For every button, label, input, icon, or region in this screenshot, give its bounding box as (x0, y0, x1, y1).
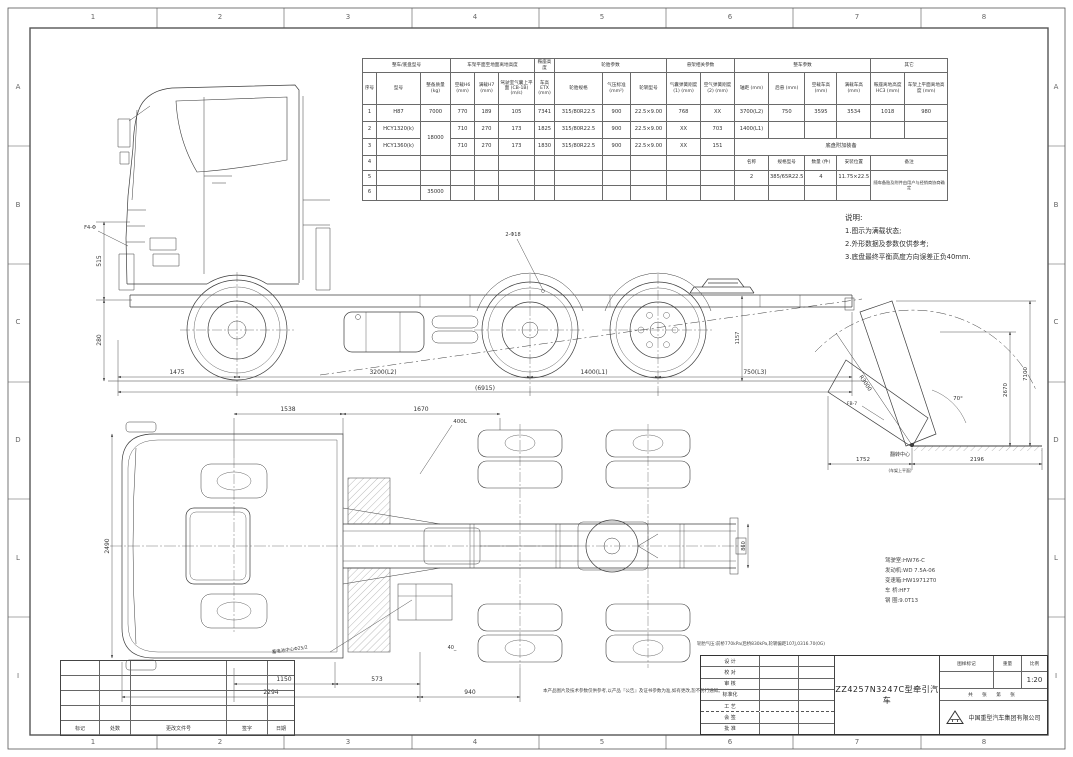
spec-cell (631, 156, 667, 171)
sign-label: 审 核 (701, 679, 760, 689)
scale-value: 1:20 (1022, 672, 1047, 688)
spec-cell (701, 186, 735, 201)
dim-overall-length: (6915) (475, 385, 495, 392)
config-line: 车 桥:HF7 (885, 586, 936, 596)
grid-row-label: C (16, 318, 21, 326)
spec-cell: 750 (769, 105, 805, 122)
spec-group: 车架平面至地面离地高度 (451, 59, 535, 73)
spec-cell: 22.5×9.00 (631, 139, 667, 156)
grid-col-label: 3 (346, 738, 350, 746)
spec-header: 序号 (363, 73, 377, 105)
company-name: 中国重型汽车集团有限公司 (968, 713, 1040, 722)
spec-header: 驾驶室气囊上平面 (CB-1B) (m/s) (499, 73, 535, 105)
label-2d18: 2-Φ18 (505, 232, 520, 238)
spec-cell: 189 (475, 105, 499, 122)
spec-cell (555, 171, 603, 186)
grid-col-label: 5 (600, 13, 604, 21)
spec-group: 整车/底盘型号 (363, 59, 451, 73)
spec-cell: 1830 (535, 139, 555, 156)
sign-label: 批 准 (701, 724, 760, 734)
spec-cell (421, 156, 451, 171)
spec-cell: 980 (905, 105, 948, 122)
spec-cell: 105 (499, 105, 535, 122)
spec-cell (701, 156, 735, 171)
spec-cell: 315/80R22.5 (555, 122, 603, 139)
grid-row-label: A (1054, 83, 1059, 91)
spec-cell (603, 186, 631, 201)
spec-cell (701, 171, 735, 186)
title-block-right: 图样标记 重量 比例 1:20 共 张 第 张 中国重型汽车集团有限公司 (940, 656, 1047, 734)
spec-header: 空气弹簧刚度(2) (mm) (701, 73, 735, 105)
config-line: 变速箱:HW19712T0 (885, 576, 936, 586)
spec-row: 2 HCY1320(k) 18000 710 270 173 1825 315/… (363, 122, 948, 139)
label-400l: 400L (453, 419, 467, 425)
spec-subheader: 名称 (735, 156, 769, 171)
grid-row-label: L (16, 554, 20, 562)
spec-cell: 1825 (535, 122, 555, 139)
dim-frame-width: 860 (741, 541, 747, 551)
spec-cell: 270 (475, 122, 499, 139)
spec-group: 其它 (871, 59, 948, 73)
config-line: 发动机:WD 7.5A-06 (885, 566, 936, 576)
spec-cell: 3700(L2) (735, 105, 769, 122)
label-tilt-center-sub: (车架上平面) (888, 467, 912, 473)
revision-row (61, 661, 294, 676)
spec-cell: 710 (451, 122, 475, 139)
label-battery-center: 蓄电池中心Φ25/2 (271, 644, 308, 656)
spec-cell: 1400(L1) (735, 122, 769, 139)
spec-subheader: 规格型号 (769, 156, 805, 171)
grid-col-label: 8 (982, 13, 986, 21)
spec-cell: 900 (603, 105, 631, 122)
grid-row-label: I (17, 672, 19, 680)
dim-front-overhang: 1475 (169, 369, 184, 376)
signature-table: 设 计 校 对 审 核 标准化 工 艺 会 签 批 准 (701, 656, 835, 734)
spec-cell (535, 186, 555, 201)
grid-col-label: 2 (218, 738, 222, 746)
spec-cell (377, 171, 421, 186)
grid-col-label: 1 (91, 738, 95, 746)
spec-subheader: 备注 (871, 156, 948, 171)
spec-row: 4 名称 规格型号 数量 (件) 安装位置 备注 (363, 156, 948, 171)
spec-cell (377, 156, 421, 171)
grid-col-label: 8 (982, 738, 986, 746)
spec-cell: XX (667, 139, 701, 156)
spec-cell (805, 122, 837, 139)
spec-cell: 315/80R22.5 (555, 139, 603, 156)
drawing-title: ZZ4257N3247C型牵引汽车 (835, 656, 940, 734)
spec-cell: 768 (667, 105, 701, 122)
spec-header: 轴距 (mm) (735, 73, 769, 105)
sign-label: 设 计 (701, 656, 760, 666)
sign-label: 标准化 (701, 690, 760, 700)
spec-cell (499, 186, 535, 201)
spec-cell: XX (667, 122, 701, 139)
grid-col-label: 6 (728, 13, 732, 21)
spec-cell: 173 (499, 122, 535, 139)
label-40: 40_ (448, 645, 457, 651)
grid-row-label: C (1054, 318, 1059, 326)
spec-cell (837, 122, 871, 139)
sign-label: 会 签 (701, 712, 760, 722)
note-item: 1.图示为满载状态; (845, 225, 1060, 238)
grid-row-label: A (16, 83, 21, 91)
grid-row-label: B (1054, 201, 1059, 209)
spec-cell: 35000 (421, 186, 451, 201)
label-tilt-angle: 70° (953, 396, 963, 402)
spec-cell (451, 156, 475, 171)
grid-col-label: 6 (728, 738, 732, 746)
title-block: 设 计 校 对 审 核 标准化 工 艺 会 签 批 准 ZZ4257N3247C… (700, 655, 1048, 735)
spec-cell (871, 122, 905, 139)
revision-col-label: 日期 (268, 721, 294, 735)
spec-cell: 385/65R22.5 (769, 171, 805, 186)
spec-cell: 3 (363, 139, 377, 156)
spec-cell: 703 (701, 122, 735, 139)
spec-cell (421, 171, 451, 186)
spec-cell: 4 (805, 171, 837, 186)
spec-cell-chassis-extra: 底盘附加装备 (735, 139, 948, 156)
config-line: 驾驶室:HW76-C (885, 556, 936, 566)
spec-header: 满载车高 (mm) (837, 73, 871, 105)
spec-cell: 1018 (871, 105, 905, 122)
spec-group: 鞍座高度 (535, 59, 555, 73)
label-fb7: FB-7 (847, 401, 857, 407)
spec-cell (555, 186, 603, 201)
spec-cell (735, 186, 769, 201)
spec-group: 悬架相关参数 (667, 59, 735, 73)
spec-row: 3 HCY1360(k) 710 270 173 1830 315/80R22.… (363, 139, 948, 156)
spec-cell (499, 156, 535, 171)
spec-cell: 11.75×22.5 (837, 171, 871, 186)
config-footnote: 轮胎气压:前桥770kPa/后桥830kPa,轮辋偏距107J,0316.70(… (697, 641, 825, 647)
grid-row-label: D (1053, 436, 1058, 444)
spec-cell: 3534 (837, 105, 871, 122)
spec-cell (535, 156, 555, 171)
spec-cell (667, 186, 701, 201)
spec-header: 整备质量 (kg) (421, 73, 451, 105)
spec-header: 空载H6 (mm) (451, 73, 475, 105)
spec-header-row: 序号 型号 整备质量 (kg) 空载H6 (mm) 满载H7 (mm) 驾驶室气… (363, 73, 948, 105)
dim-rear-overhang: 750(L3) (743, 369, 766, 376)
spec-cell: 4 (363, 156, 377, 171)
spec-cell: 7000 (421, 105, 451, 122)
revision-table: 标记 处数 更改文件号 签字 日期 (60, 660, 295, 736)
spec-cell: 5 (363, 171, 377, 186)
spec-row: 1 H87 7000 770 189 105 7341 315/80R22.5 … (363, 105, 948, 122)
spec-subheader: 数量 (件) (805, 156, 837, 171)
notes-block: 说明: 1.图示为满载状态; 2.外形数据及参数仅供参考; 3.底盘最终平衡高度… (845, 212, 1060, 264)
sign-label: 工 艺 (701, 701, 760, 711)
spec-cell (475, 156, 499, 171)
dim-1538: 1538 (280, 406, 295, 413)
revision-row (61, 691, 294, 706)
spec-cell (377, 186, 421, 201)
spec-row: 5 2 385/65R22.5 4 11.75×22.5 随车备胎及附件由用户与… (363, 171, 948, 186)
spec-cell: HCY1360(k) (377, 139, 421, 156)
spec-cell: HCY1320(k) (377, 122, 421, 139)
drawing-sheet: 1475 3200(L2) 1400(L1) 750(L3) (6915) 51… (0, 0, 1073, 757)
spec-group: 整车参数 (735, 59, 871, 73)
dim-cab-width: 2490 (104, 538, 111, 553)
spec-cell: 770 (451, 105, 475, 122)
spec-header: 气压标准 (mm²) (603, 73, 631, 105)
spec-cell (905, 122, 948, 139)
spec-header: 空载车高 (mm) (805, 73, 837, 105)
spec-cell: XX (701, 105, 735, 122)
revision-row (61, 706, 294, 721)
spec-header: 型号 (377, 73, 421, 105)
spec-row: 6 35000 (363, 186, 948, 201)
grid-col-label: 3 (346, 13, 350, 21)
spec-cell (631, 186, 667, 201)
dim-7100: 7100 (1023, 367, 1029, 381)
spec-cell: 900 (603, 122, 631, 139)
revision-col-label: 处数 (100, 721, 131, 735)
sheet-count: 共 张 第 张 (940, 689, 1047, 701)
dim-tandem: 1400(L1) (580, 369, 607, 376)
spec-group: 轮胎参数 (555, 59, 667, 73)
spec-header: 轮辋型号 (631, 73, 667, 105)
dim-height-280: 280 (96, 334, 103, 346)
grid-col-label: 1 (91, 13, 95, 21)
spec-header: 气囊弹簧刚度(1) (mm) (667, 73, 701, 105)
grid-col-label: 4 (473, 13, 477, 21)
note-item: 3.底盘最终平衡高度方向误差正负40mm. (845, 251, 1060, 264)
spec-cell: 315/80R22.5 (555, 105, 603, 122)
spec-cell (603, 171, 631, 186)
revision-col-label: 签字 (227, 721, 268, 735)
spec-cell: 2 (363, 122, 377, 139)
spec-cell (769, 122, 805, 139)
spec-header: 后悬 (mm) (769, 73, 805, 105)
notes-title: 说明: (845, 212, 1060, 223)
spec-cell: 3595 (805, 105, 837, 122)
spec-cell (475, 186, 499, 201)
spec-cell (769, 186, 805, 201)
dim-940: 940 (464, 689, 476, 696)
label-f4: F4-Φ (84, 225, 96, 231)
spec-table: 整车/底盘型号 车架平面至地面离地高度 鞍座高度 轮胎参数 悬架相关参数 整车参… (362, 58, 948, 201)
dim-2196: 2196 (970, 457, 984, 463)
top-view-drawing: 1538 1670 400L 1150 573 2294 940 2490 86… (104, 406, 748, 702)
spec-cell (499, 171, 535, 186)
spec-cell (555, 156, 603, 171)
grid-row-label: B (16, 201, 21, 209)
spec-header: 满载H7 (mm) (475, 73, 499, 105)
tilt-view-drawing: R3000 70° 2670 7100 1752 2196 翻转中心 (车架上平… (815, 301, 1042, 473)
spec-cell (667, 171, 701, 186)
grid-col-label: 7 (855, 738, 859, 746)
scale-label: 比例 (1022, 656, 1047, 671)
spec-subheader: 安装位置 (837, 156, 871, 171)
grid-col-label: 4 (473, 738, 477, 746)
spec-cell: 1 (363, 105, 377, 122)
grid-col-label: 5 (600, 738, 604, 746)
spec-cell: 151 (701, 139, 735, 156)
config-line: 钢 圈:9.0T13 (885, 596, 936, 606)
mark-label: 图样标记 (940, 656, 994, 671)
revision-row (61, 676, 294, 691)
revision-header-row: 标记 处数 更改文件号 签字 日期 (61, 721, 294, 735)
spec-cell (475, 171, 499, 186)
spec-cell: 710 (451, 139, 475, 156)
company-logo-icon (946, 710, 964, 725)
spec-cell: 22.5×9.00 (631, 122, 667, 139)
grid-row-label: D (15, 436, 20, 444)
spec-cell: 173 (499, 139, 535, 156)
revision-col-label: 标记 (61, 721, 100, 735)
dim-573: 573 (371, 676, 383, 683)
spec-group-row: 整车/底盘型号 车架平面至地面离地高度 鞍座高度 轮胎参数 悬架相关参数 整车参… (363, 59, 948, 73)
spec-cell (603, 156, 631, 171)
spec-cell-spare-note: 随车备胎及附件由用户与经销商协商确定 (871, 171, 948, 201)
grid-col-label: 2 (218, 13, 222, 21)
dim-height-515: 515 (96, 255, 103, 267)
spec-cell: 18000 (421, 122, 451, 156)
spec-cell (631, 171, 667, 186)
spec-cell: H87 (377, 105, 421, 122)
spec-header: 轮胎规格 (555, 73, 603, 105)
spec-header: 车高 ETX (mm) (535, 73, 555, 105)
spec-cell (535, 171, 555, 186)
spec-cell: 270 (475, 139, 499, 156)
spec-cell: 22.5×9.00 (631, 105, 667, 122)
spec-cell: 6 (363, 186, 377, 201)
spec-header: 车架上平面离地高度 (mm) (905, 73, 948, 105)
revision-col-label: 更改文件号 (131, 721, 227, 735)
spec-cell (667, 156, 701, 171)
spec-cell: 2 (735, 171, 769, 186)
spec-cell: 900 (603, 139, 631, 156)
grid-row-label: L (1054, 554, 1058, 562)
sign-label: 校 对 (701, 667, 760, 677)
grid-col-label: 7 (855, 13, 859, 21)
config-block: 驾驶室:HW76-C 发动机:WD 7.5A-06 变速箱:HW19712T0 … (885, 556, 936, 606)
spec-cell (451, 171, 475, 186)
dim-frame-height: 1157 (735, 332, 741, 345)
note-item: 2.外形数据及参数仅供参考; (845, 238, 1060, 251)
spec-cell (451, 186, 475, 201)
label-tilt-center: 翻转中心 (890, 451, 910, 458)
dim-2670: 2670 (1003, 383, 1009, 397)
spec-cell: 7341 (535, 105, 555, 122)
grid-row-label: I (1055, 672, 1057, 680)
dim-1752: 1752 (856, 457, 870, 463)
dim-wheelbase: 3200(L2) (369, 369, 396, 376)
weight-label: 重量 (994, 656, 1022, 671)
spec-cell (805, 186, 837, 201)
spec-cell (837, 186, 871, 201)
spec-header: 鞍座离地高度 HC3 (mm) (871, 73, 905, 105)
dim-1670: 1670 (413, 406, 428, 413)
